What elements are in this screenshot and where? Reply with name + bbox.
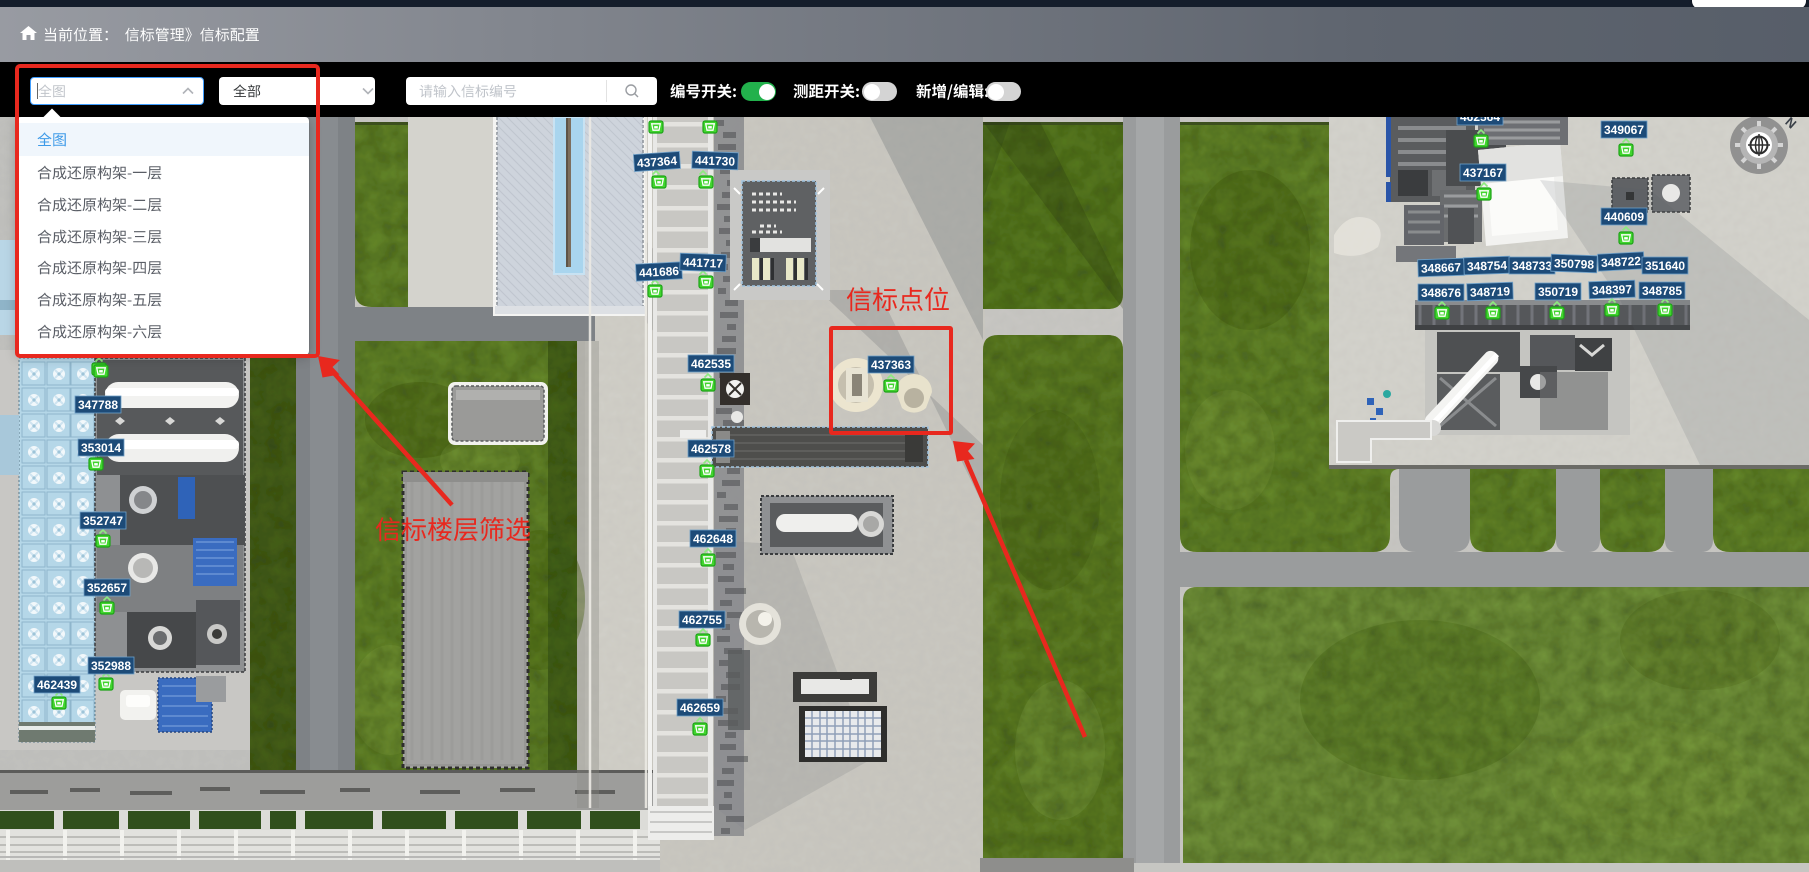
svg-text:437167: 437167	[1463, 166, 1503, 180]
svg-text:348667: 348667	[1421, 260, 1462, 275]
svg-text:462439: 462439	[37, 678, 77, 692]
svg-text:348754: 348754	[1467, 258, 1508, 273]
svg-text:353014: 353014	[81, 441, 121, 455]
svg-text:350719: 350719	[1538, 285, 1578, 299]
svg-text:441730: 441730	[695, 153, 736, 168]
svg-text:462564: 462564	[1460, 117, 1500, 124]
svg-text:348722: 348722	[1601, 254, 1642, 270]
svg-text:352747: 352747	[83, 514, 123, 528]
svg-text:347788: 347788	[78, 398, 118, 412]
svg-text:440609: 440609	[1604, 210, 1644, 224]
svg-text:462755: 462755	[682, 613, 722, 627]
svg-text:349067: 349067	[1604, 123, 1644, 137]
svg-text:352988: 352988	[91, 659, 131, 673]
svg-text:441686: 441686	[639, 264, 680, 280]
svg-text:352657: 352657	[87, 581, 127, 595]
svg-text:351640: 351640	[1645, 259, 1685, 273]
svg-text:462648: 462648	[693, 532, 733, 546]
svg-text:441717: 441717	[683, 255, 724, 270]
svg-text:350798: 350798	[1554, 256, 1595, 271]
svg-text:348785: 348785	[1642, 284, 1682, 298]
svg-text:348733: 348733	[1512, 259, 1552, 273]
svg-text:348676: 348676	[1421, 286, 1461, 300]
svg-text:462535: 462535	[691, 357, 731, 371]
svg-text:462578: 462578	[691, 442, 731, 456]
svg-text:437364: 437364	[637, 154, 678, 171]
svg-text:462659: 462659	[680, 701, 720, 715]
svg-text:348397: 348397	[1592, 282, 1633, 297]
svg-text:348719: 348719	[1470, 284, 1511, 299]
